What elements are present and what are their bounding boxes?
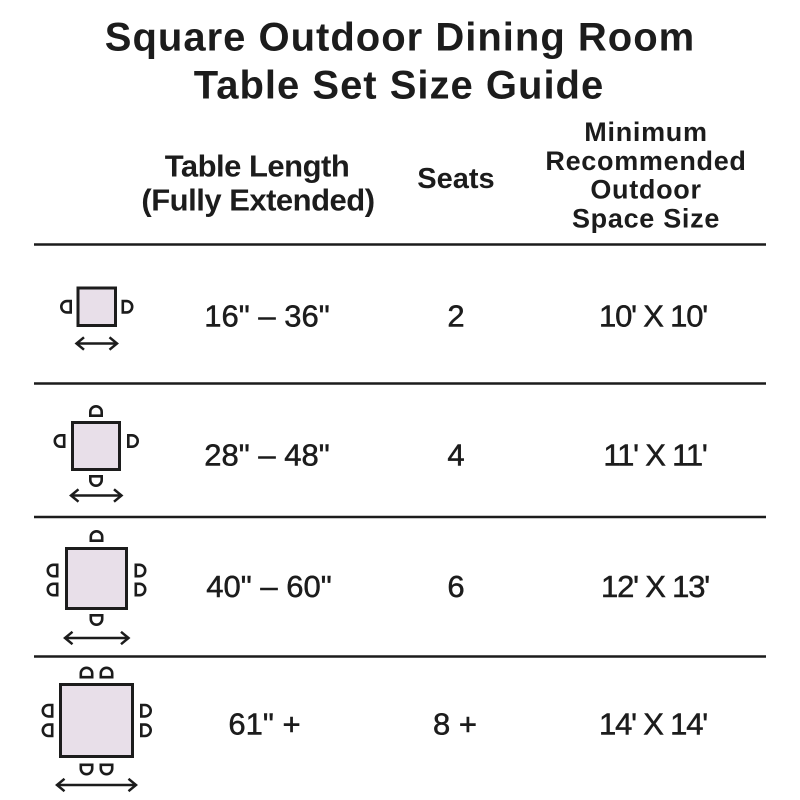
svg-text:12' X 13': 12' X 13' [601, 569, 709, 604]
svg-text:(Fully Extended): (Fully Extended) [141, 183, 374, 218]
svg-text:16" – 36": 16" – 36" [204, 299, 329, 334]
svg-text:6: 6 [447, 569, 464, 604]
svg-text:Space Size: Space Size [572, 204, 720, 234]
svg-text:10' X 10': 10' X 10' [599, 299, 707, 334]
svg-text:28" – 48": 28" – 48" [204, 438, 329, 473]
svg-text:11' X 11': 11' X 11' [603, 438, 707, 473]
svg-text:Minimum: Minimum [584, 117, 707, 147]
svg-text:61" +: 61" + [228, 707, 300, 742]
svg-text:Outdoor: Outdoor [590, 175, 701, 205]
svg-text:Seats: Seats [417, 163, 494, 195]
svg-text:Square Outdoor Dining Room: Square Outdoor Dining Room [105, 16, 695, 60]
svg-text:Table Set Size Guide: Table Set Size Guide [194, 64, 604, 108]
svg-text:Table Length: Table Length [165, 149, 350, 184]
svg-text:2: 2 [447, 299, 464, 334]
svg-text:8 +: 8 + [433, 707, 477, 742]
svg-text:14' X 14': 14' X 14' [599, 707, 707, 742]
svg-text:4: 4 [447, 438, 464, 473]
svg-text:Recommended: Recommended [545, 146, 746, 176]
svg-text:40" – 60": 40" – 60" [206, 569, 331, 604]
